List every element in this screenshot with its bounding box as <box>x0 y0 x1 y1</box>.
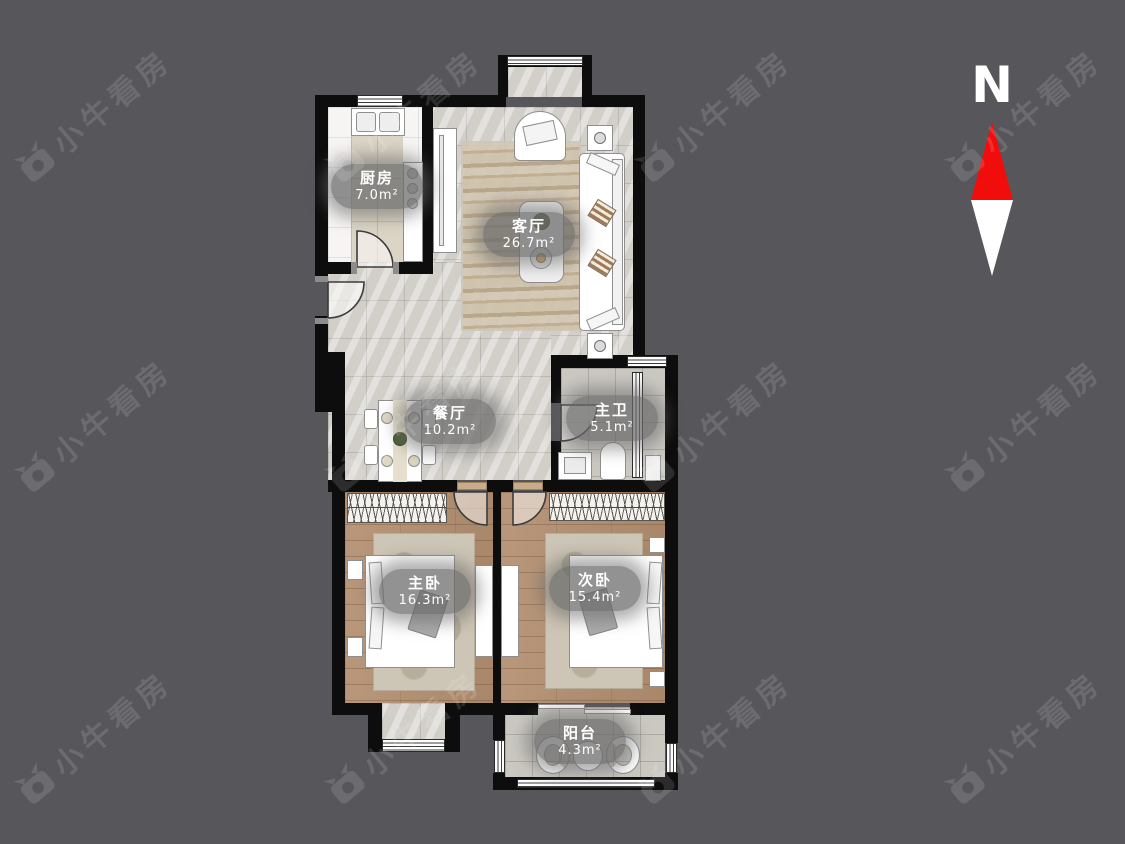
wall-segment <box>582 55 592 97</box>
sofa-backrest <box>612 159 623 325</box>
watermark-text: 小牛看房 <box>972 659 1111 785</box>
north-arrow-icon <box>969 118 1015 280</box>
entry-bay-floor <box>508 65 582 97</box>
watermark: 小牛看房 <box>8 347 180 502</box>
plant-bottom <box>594 340 606 352</box>
room-area: 4.3m² <box>534 743 626 759</box>
kitchen-window <box>357 95 403 107</box>
wall-segment <box>501 703 538 715</box>
dinner-plate <box>408 455 420 467</box>
room-name: 客厅 <box>483 217 575 236</box>
balcony-window-right <box>666 743 677 773</box>
wall-segment <box>332 492 345 715</box>
room-area: 26.7m² <box>483 236 575 252</box>
hall-wardrobe-right <box>501 565 519 657</box>
tv-cabinet-inner <box>439 135 444 246</box>
tv-cabinet <box>433 128 457 253</box>
master-nightstand <box>347 637 363 657</box>
second-nightstand <box>649 537 665 553</box>
watermark-text: 小牛看房 <box>42 347 181 473</box>
room-area: 16.3m² <box>379 593 471 609</box>
bull-logo-icon <box>10 137 61 188</box>
watermark-text: 小牛看房 <box>662 347 801 473</box>
north-label: N <box>962 60 1022 110</box>
wall-segment <box>315 95 328 282</box>
floorplan-screenshot: 厨房7.0m²客厅26.7m²餐厅10.2m²主卫5.1m²主卧16.3m²次卧… <box>0 0 1125 844</box>
room-name: 阳台 <box>534 724 626 743</box>
dining-chair <box>364 445 378 465</box>
wall-segment <box>422 95 506 107</box>
second-wardrobe <box>549 493 665 521</box>
wall-segment <box>551 355 561 403</box>
watermark: 小牛看房 <box>8 37 180 192</box>
watermark-text: 小牛看房 <box>662 37 801 163</box>
watermark-text: 小牛看房 <box>42 659 181 785</box>
dining-chair <box>364 409 378 429</box>
wall-segment <box>493 703 505 740</box>
wall-segment <box>393 262 433 274</box>
wall-segment <box>633 95 645 367</box>
watermark: 小牛看房 <box>938 659 1110 814</box>
wall-segment <box>665 492 678 715</box>
wall-segment <box>422 107 433 265</box>
room-name: 主卫 <box>566 401 658 420</box>
entry-bay-window <box>507 56 583 66</box>
entry-door-jamb <box>315 276 328 282</box>
room-label-dining-room: 餐厅10.2m² <box>404 399 496 444</box>
watermark: 小牛看房 <box>938 347 1110 502</box>
wall-segment <box>445 703 460 752</box>
watermark: 小牛看房 <box>8 659 180 814</box>
compass: N <box>962 60 1022 295</box>
dining-chair <box>422 445 436 465</box>
bath-window <box>627 356 667 367</box>
room-area: 5.1m² <box>566 420 658 436</box>
second-door-threshold <box>513 482 543 490</box>
room-name: 餐厅 <box>404 404 496 423</box>
second-nightstand <box>649 671 665 687</box>
room-label-master-bedroom: 主卧16.3m² <box>379 569 471 614</box>
room-label-living-room: 客厅26.7m² <box>483 212 575 257</box>
bull-logo-icon <box>940 447 991 498</box>
room-area: 15.4m² <box>549 590 641 606</box>
balcony-sliding-door <box>584 709 631 714</box>
bath-vanity-basin <box>564 457 586 474</box>
floor-drain-tap <box>645 455 661 481</box>
wall-segment <box>487 480 513 492</box>
room-area: 7.0m² <box>331 188 423 204</box>
kitchen-door-jamb <box>393 262 399 274</box>
master-bay-floor <box>382 703 445 741</box>
watermark-text: 小牛看房 <box>42 37 181 163</box>
master-bay-window <box>382 739 445 752</box>
hall-wardrobe-left <box>475 565 493 657</box>
plant-top <box>594 132 606 144</box>
room-name: 主卧 <box>379 574 471 593</box>
room-area: 10.2m² <box>404 423 496 439</box>
watermark-text: 小牛看房 <box>972 347 1111 473</box>
room-label-balcony: 阳台4.3m² <box>534 719 626 764</box>
room-name: 厨房 <box>331 169 423 188</box>
kitchen-sink-basin-right <box>379 112 400 132</box>
room-name: 次卧 <box>549 571 641 590</box>
toilet <box>600 442 626 480</box>
master-door-threshold <box>457 482 487 490</box>
wall-segment <box>493 492 501 703</box>
room-label-master-bath: 主卫5.1m² <box>566 396 658 441</box>
balcony-sliding-door <box>538 704 585 709</box>
balcony-window <box>517 779 655 788</box>
wall-segment <box>315 352 345 412</box>
dinner-plate <box>381 412 393 424</box>
bull-logo-icon <box>10 759 61 810</box>
room-label-second-bedroom: 次卧15.4m² <box>549 566 641 611</box>
bull-logo-icon <box>940 759 991 810</box>
dinner-plate <box>381 455 393 467</box>
kitchen-door-jamb <box>351 262 357 274</box>
wall-segment <box>543 480 677 492</box>
kitchen-sink-basin-left <box>356 112 376 132</box>
balcony-window-left <box>494 740 505 773</box>
entry-door-jamb <box>315 318 328 324</box>
master-nightstand <box>347 560 363 580</box>
floorplan: 厨房7.0m²客厅26.7m²餐厅10.2m²主卫5.1m²主卧16.3m²次卧… <box>315 55 680 795</box>
wall-segment <box>368 703 382 752</box>
room-label-kitchen: 厨房7.0m² <box>331 164 423 209</box>
wall-segment <box>665 355 678 492</box>
watermark-text: 小牛看房 <box>662 659 801 785</box>
wall-segment <box>665 703 678 743</box>
master-wardrobe <box>347 493 447 523</box>
bull-logo-icon <box>10 447 61 498</box>
